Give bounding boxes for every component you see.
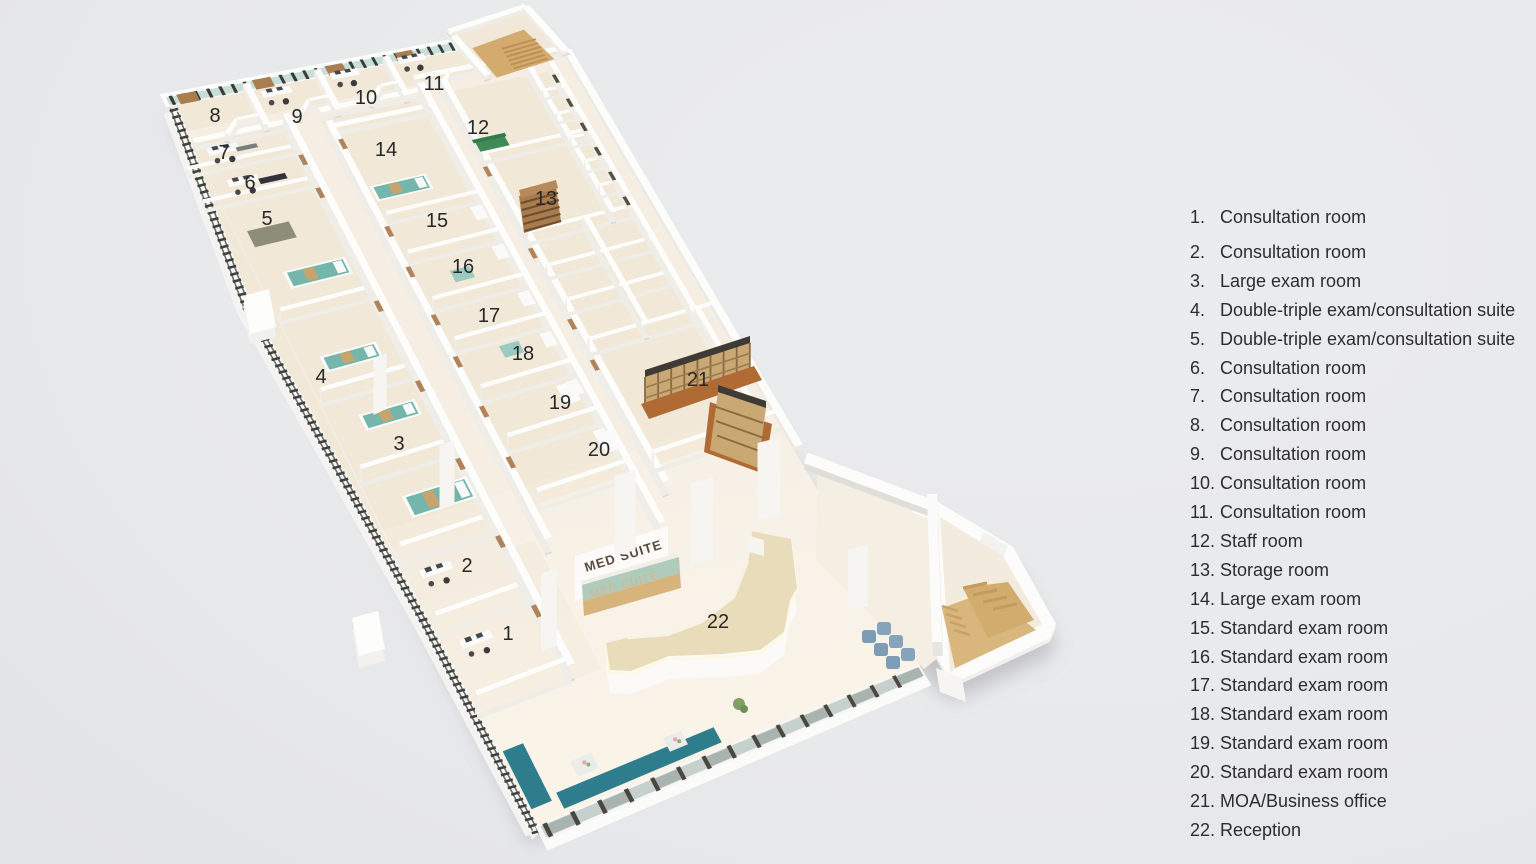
svg-text:2: 2 <box>461 555 472 577</box>
svg-text:18: 18 <box>512 343 534 365</box>
svg-text:13: 13 <box>535 188 557 210</box>
svg-text:6: 6 <box>244 172 255 194</box>
svg-text:1: 1 <box>502 623 513 645</box>
svg-text:9: 9 <box>291 106 302 128</box>
svg-text:3: 3 <box>393 433 404 455</box>
svg-text:5: 5 <box>261 208 272 230</box>
svg-text:20: 20 <box>588 439 610 461</box>
svg-text:15: 15 <box>426 210 448 232</box>
svg-text:17: 17 <box>478 305 500 327</box>
svg-text:7: 7 <box>218 142 229 164</box>
svg-text:14: 14 <box>375 139 397 161</box>
svg-text:19: 19 <box>549 392 571 414</box>
svg-text:21: 21 <box>687 369 709 391</box>
svg-text:12: 12 <box>467 117 489 139</box>
svg-text:16: 16 <box>452 256 474 278</box>
svg-text:8: 8 <box>209 105 220 127</box>
svg-text:11: 11 <box>424 73 445 95</box>
svg-text:22: 22 <box>707 611 729 633</box>
svg-text:10: 10 <box>355 87 377 109</box>
svg-text:4: 4 <box>315 366 326 388</box>
